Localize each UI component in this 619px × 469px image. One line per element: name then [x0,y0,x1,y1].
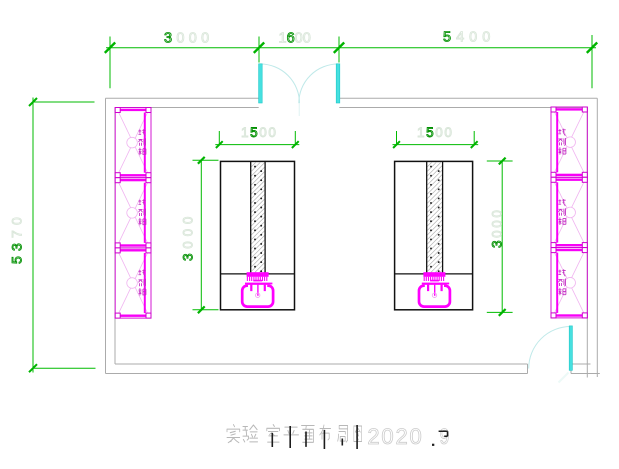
svg-text:1600: 1600 [279,31,311,47]
svg-text:3000: 3000 [164,31,213,47]
svg-text:5370: 5370 [9,212,25,264]
svg-text:5400: 5400 [443,30,495,46]
svg-text:3000: 3000 [490,208,505,248]
svg-text:1500: 1500 [241,125,277,140]
svg-text:9: 9 [440,425,450,449]
svg-text:3000: 3000 [181,212,196,261]
svg-text:2020: 2020 [367,424,423,449]
svg-text:1500: 1500 [417,125,453,140]
